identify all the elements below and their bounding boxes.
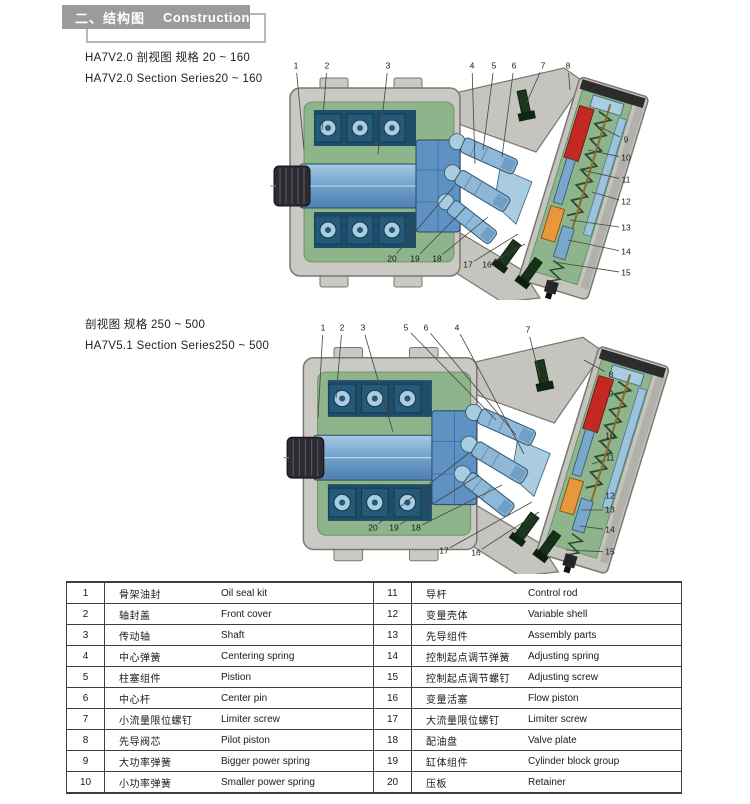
section-header-en: Construction [163, 10, 250, 25]
part-name-en: Center pin [221, 688, 373, 708]
part-number: 4 [67, 646, 105, 666]
part-name-cn: 小流量限位螺钉 [105, 709, 221, 729]
part-number: 19 [374, 751, 412, 771]
part-name-en: Bigger power spring [221, 751, 373, 771]
diagram2-title-cn: 剖视图 规格 250 ~ 500 [85, 315, 269, 336]
table-row: 9大功率弹簧Bigger power spring [67, 751, 373, 772]
parts-table: 1骨架油封Oil seal kit2轴封盖Front cover3传动轴Shaf… [66, 581, 682, 794]
part-number: 10 [67, 772, 105, 792]
part-name-cn: 骨架油封 [105, 583, 221, 603]
part-number: 1 [67, 583, 105, 603]
callout-number: 2 [325, 60, 330, 70]
section-header-cn: 二、结构图 [75, 8, 145, 27]
part-number: 12 [374, 604, 412, 624]
part-name-cn: 传动轴 [105, 625, 221, 645]
callout-number: 1 [294, 60, 299, 70]
part-number: 11 [374, 583, 412, 603]
part-name-cn: 缸体组件 [412, 751, 528, 771]
callout-number: 8 [609, 369, 614, 379]
callout-number: 1 [321, 322, 326, 332]
callout-number: 6 [512, 60, 517, 70]
callout-number: 4 [470, 60, 475, 70]
callout-number: 18 [432, 253, 442, 263]
callout-number: 20 [368, 522, 378, 532]
part-name-en: Pilot piston [221, 730, 373, 750]
callout-number: 6 [424, 322, 429, 332]
table-row: 14控制起点调节弹簧Adjusting spring [374, 646, 681, 667]
callout-number: 14 [621, 246, 631, 256]
table-row: 17大流量限位螺钉Limiter screw [374, 709, 681, 730]
callout-number: 7 [526, 324, 531, 334]
part-name-cn: 中心杆 [105, 688, 221, 708]
part-number: 18 [374, 730, 412, 750]
table-row: 13先导组件Assembly parts [374, 625, 681, 646]
part-number: 6 [67, 688, 105, 708]
table-row: 11导杆Control rod [374, 583, 681, 604]
part-number: 15 [374, 667, 412, 687]
part-number: 13 [374, 625, 412, 645]
table-row: 16变量活塞Flow piston [374, 688, 681, 709]
part-name-en: Centering spring [221, 646, 373, 666]
part-name-en: Flow piston [528, 688, 681, 708]
callout-number: 8 [566, 60, 571, 70]
part-number: 9 [67, 751, 105, 771]
part-number: 5 [67, 667, 105, 687]
diagram1-title-en: HA7V2.0 Section Series20 ~ 160 [85, 69, 262, 90]
callout-number: 3 [386, 60, 391, 70]
diagram2-title: 剖视图 规格 250 ~ 500 HA7V5.1 Section Series2… [85, 315, 269, 357]
callout-number: 10 [605, 430, 615, 440]
parts-table-left: 1骨架油封Oil seal kit2轴封盖Front cover3传动轴Shaf… [67, 583, 374, 792]
part-name-cn: 柱塞组件 [105, 667, 221, 687]
callout-number: 14 [605, 524, 615, 534]
page: { "header": { "title_cn": "二、结构图", "titl… [0, 0, 750, 804]
part-name-cn: 变量壳体 [412, 604, 528, 624]
callout-number: 18 [411, 522, 421, 532]
callout-number: 9 [609, 388, 614, 398]
callout-number: 15 [621, 267, 631, 277]
part-name-cn: 导杆 [412, 583, 528, 603]
part-name-cn: 小功率弹簧 [105, 772, 221, 792]
table-row: 7小流量限位螺钉Limiter screw [67, 709, 373, 730]
part-name-en: Shaft [221, 625, 373, 645]
callout-number: 5 [492, 60, 497, 70]
pump-cutaway-diagram-large-series: 1235647891011121314152019181716 [278, 314, 674, 578]
table-row: 1骨架油封Oil seal kit [67, 583, 373, 604]
part-number: 8 [67, 730, 105, 750]
part-name-cn: 先导阀芯 [105, 730, 221, 750]
part-name-en: Valve plate [528, 730, 681, 750]
parts-table-right: 11导杆Control rod12变量壳体Variable shell13先导组… [374, 583, 681, 792]
callout-number: 19 [410, 253, 420, 263]
diagram1-title-cn: HA7V2.0 剖视图 规格 20 ~ 160 [85, 48, 262, 69]
part-name-en: Variable shell [528, 604, 681, 624]
callout-number: 20 [387, 253, 397, 263]
table-row: 6中心杆Center pin [67, 688, 373, 709]
part-name-cn: 控制起点调节螺钉 [412, 667, 528, 687]
table-row: 18配油盘Valve plate [374, 730, 681, 751]
callout-number: 16 [482, 259, 492, 269]
callout-number: 19 [389, 522, 399, 532]
part-name-cn: 控制起点调节弹簧 [412, 646, 528, 666]
diagram1-title: HA7V2.0 剖视图 规格 20 ~ 160 HA7V2.0 Section … [85, 48, 262, 90]
callout-number: 9 [624, 134, 629, 144]
part-name-cn: 压板 [412, 772, 528, 792]
table-row: 12变量壳体Variable shell [374, 604, 681, 625]
part-name-en: Smaller power spring [221, 772, 373, 792]
part-name-en: Cylinder block group [528, 751, 681, 771]
diagram2-title-en: HA7V5.1 Section Series250 ~ 500 [85, 336, 269, 357]
section-header: 二、结构图 Construction [62, 5, 250, 29]
part-name-en: Oil seal kit [221, 583, 373, 603]
part-number: 7 [67, 709, 105, 729]
callout-number: 17 [439, 545, 449, 555]
table-row: 19缸体组件Cylinder block group [374, 751, 681, 772]
callout-number: 7 [541, 60, 546, 70]
callout-number: 11 [606, 452, 615, 462]
callout-number: 13 [621, 222, 631, 232]
part-name-en: Assembly parts [528, 625, 681, 645]
part-name-en: Adjusting screw [528, 667, 681, 687]
part-name-cn: 中心弹簧 [105, 646, 221, 666]
part-name-en: Adjusting spring [528, 646, 681, 666]
table-row: 3传动轴Shaft [67, 625, 373, 646]
part-name-cn: 大流量限位螺钉 [412, 709, 528, 729]
table-row: 10小功率弹簧Smaller power spring [67, 772, 373, 792]
part-name-cn: 先导组件 [412, 625, 528, 645]
pump-cutaway-artwork [270, 68, 649, 300]
part-name-en: Limiter screw [221, 709, 373, 729]
part-name-en: Control rod [528, 583, 681, 603]
part-number: 2 [67, 604, 105, 624]
callout-number: 2 [340, 322, 345, 332]
callout-number: 4 [455, 322, 460, 332]
callout-number: 3 [361, 322, 366, 332]
callout-number: 10 [621, 152, 631, 162]
callout-number: 17 [463, 259, 473, 269]
table-row: 2轴封盖Front cover [67, 604, 373, 625]
table-row: 5柱塞组件Pistion [67, 667, 373, 688]
part-number: 16 [374, 688, 412, 708]
part-name-cn: 轴封盖 [105, 604, 221, 624]
callout-number: 13 [605, 504, 615, 514]
part-name-cn: 变量活塞 [412, 688, 528, 708]
callout-number: 11 [622, 174, 631, 184]
part-name-en: Retainer [528, 772, 681, 792]
part-name-en: Pistion [221, 667, 373, 687]
table-row: 4中心弹簧Centering spring [67, 646, 373, 667]
callout-number: 16 [471, 547, 481, 557]
part-number: 20 [374, 772, 412, 792]
table-row: 8先导阀芯Pilot piston [67, 730, 373, 751]
callout-number: 12 [621, 196, 631, 206]
part-number: 3 [67, 625, 105, 645]
table-row: 20压板Retainer [374, 772, 681, 792]
part-name-en: Limiter screw [528, 709, 681, 729]
part-name-cn: 配油盘 [412, 730, 528, 750]
part-number: 17 [374, 709, 412, 729]
callout-number: 12 [605, 490, 615, 500]
callout-number: 15 [605, 546, 615, 556]
part-name-en: Front cover [221, 604, 373, 624]
part-name-cn: 大功率弹簧 [105, 751, 221, 771]
table-row: 15控制起点调节螺钉Adjusting screw [374, 667, 681, 688]
callout-number: 5 [404, 322, 409, 332]
pump-cutaway-diagram-small-series: 1234567891011121314152019181716 [270, 52, 650, 300]
part-number: 14 [374, 646, 412, 666]
